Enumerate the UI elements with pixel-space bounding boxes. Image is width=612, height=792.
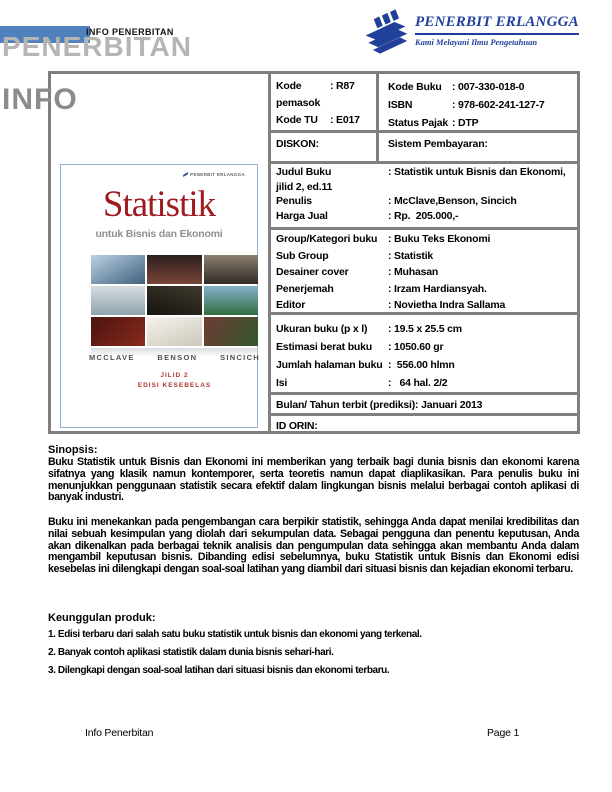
cover-photo-tile [91,255,145,284]
sinopsis-paragraph-2: Buku ini menekankan pada pengembangan ca… [48,517,579,576]
field-estimasi-berat: Estimasi berat buku: 1050.60 gr [276,338,574,356]
cover-photo-grid [91,255,258,346]
keunggulan-heading: Keunggulan produk: [48,612,156,624]
diskon-label: DISKON: [276,136,319,153]
field-desainer-cover: Desainer cover: Muhasan [276,264,574,281]
cover-author: BENSON [157,353,197,362]
cover-title: Statistik [61,183,257,226]
field-id-orin: ID ORIN: [276,418,318,435]
field-penerjemah: Penerjemah: Irzam Hardiansyah. [276,281,574,298]
erlangga-logo: PENERBIT ERLANGGA Kami Melayani Ilmu Pen… [362,6,579,56]
sistem-pembayaran-label: Sistem Pembayaran: [388,136,488,153]
field-jumlah-halaman: Jumlah halaman buku: 556.00 hlmn [276,356,574,374]
field-bulan-tahun-terbit: Bulan/ Tahun terbit (prediksi): Januari … [276,397,482,414]
cover-publisher-logo-icon [183,172,188,177]
cover-authors: MCCLAVE BENSON SINCICH [89,353,260,362]
field-isi: Isi: 64 hal. 2/2 [276,374,574,392]
field-status-pajak: Status Pajak: DTP [388,114,574,132]
page-title: INFO PENERBITAN [86,27,174,37]
document-page: PENERBITAN INFO PENERBITAN INFO PENERBIT… [0,0,612,792]
supplier-codes-cell: Kode pemasok: R87 Kode TU: E017 [276,78,372,129]
cover-edition-edisi: EDISI KESEBELAS [91,381,258,391]
logo-text: PENERBIT ERLANGGA Kami Melayani Ilmu Pen… [415,6,579,47]
cover-publisher: PENERBIT ERLANGGA [183,172,245,177]
cover-photo-tile [147,255,201,284]
table-divider-vertical-main [268,74,271,431]
cover-photo-tile [204,255,258,284]
cover-publisher-name: PENERBIT ERLANGGA [190,172,245,177]
table-divider-below-diskon [271,161,577,164]
watermark-info: INFO [2,83,78,117]
table-divider-vertical-codes [376,74,379,161]
cover-author: SINCICH [220,353,260,362]
footer-page-number: Page 1 [487,727,519,739]
field-kode-buku: Kode Buku: 007-330-018-0 [388,78,574,96]
category-staff-cell: Group/Kategori buku: Buku Teks Ekonomi S… [276,231,574,314]
title-author-price-cell: Judul Buku: Statistik untuk Bisnis dan E… [276,165,574,223]
cover-author: MCCLAVE [89,353,135,362]
logo-name: PENERBIT ERLANGGA [415,14,579,35]
cover-photo-tile [147,317,201,346]
logo-tagline: Kami Melayani Ilmu Pengetahuan [415,37,579,47]
book-codes-cell: Kode Buku: 007-330-018-0 ISBN: 978-602-2… [388,78,574,132]
keunggulan-item: 2. Banyak contoh aplikasi statistik dala… [48,646,579,659]
field-harga-jual: Harga Jual: Rp. 205.000,- [276,209,574,224]
field-ukuran-buku: Ukuran buku (p x l): 19.5 x 25.5 cm [276,320,574,338]
keunggulan-list: 1. Edisi terbaru dari salah satu buku st… [48,628,579,682]
field-sub-group: Sub Group: Statistik [276,248,574,265]
erlangga-logo-icon [362,6,409,56]
cover-photo-tile [91,317,145,346]
field-kode-tu: Kode TU: E017 [276,112,372,129]
sinopsis-paragraph-1: Buku Statistik untuk Bisnis dan Ekonomi … [48,457,579,504]
field-group-kategori: Group/Kategori buku: Buku Teks Ekonomi [276,231,574,248]
field-isbn: ISBN: 978-602-241-127-7 [388,96,574,114]
keunggulan-item: 3. Dilengkapi dengan soal-soal latihan d… [48,664,579,677]
field-editor: Editor: Novietha Indra Sallama [276,297,574,314]
table-divider-below-judul [271,227,577,230]
field-penulis: Penulis: McClave,Benson, Sincich [276,194,574,209]
cover-edition-jilid: JILID 2 [91,371,258,381]
sinopsis-heading: Sinopsis: [48,444,98,456]
cover-edition: JILID 2 EDISI KESEBELAS [91,371,258,390]
field-kode-pemasok: Kode pemasok: R87 [276,78,372,112]
cover-photo-tile [147,286,201,315]
cover-photo-tile [204,286,258,315]
book-cover: PENERBIT ERLANGGA Statistik untuk Bisnis… [60,164,258,428]
keunggulan-item: 1. Edisi terbaru dari salah satu buku st… [48,628,579,641]
footer-document-name: Info Penerbitan [85,727,153,739]
dimensions-cell: Ukuran buku (p x l): 19.5 x 25.5 cm Esti… [276,320,574,392]
cover-photo-tile [204,317,258,346]
cover-photo-tile [91,286,145,315]
cover-subtitle: untuk Bisnis dan Ekonomi [61,228,257,240]
field-judul-buku: Judul Buku: Statistik untuk Bisnis dan E… [276,165,574,180]
table-divider-below-ukuran [271,392,577,395]
field-judul-buku-lanjutan: jilid 2, ed.11 [276,180,574,195]
